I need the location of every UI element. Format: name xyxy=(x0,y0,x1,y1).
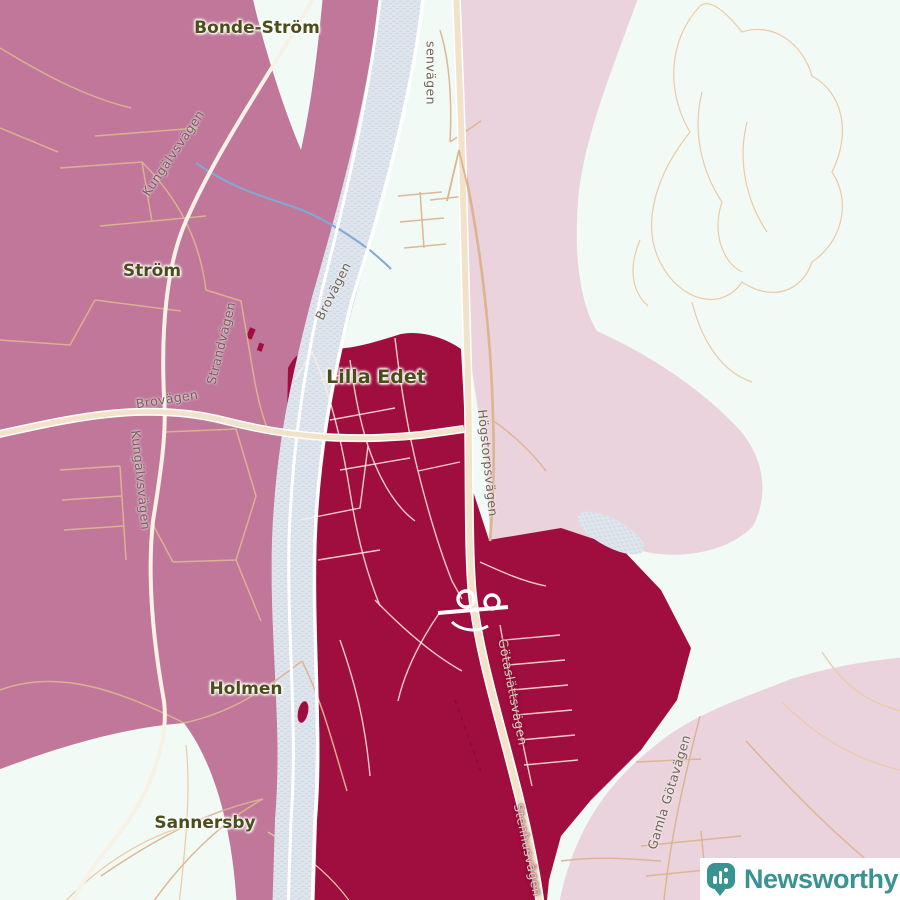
attribution-logo: Newsworthy xyxy=(700,858,900,900)
map-svg xyxy=(0,0,900,900)
map-canvas[interactable]: Bonde-Ström Ström Lilla Edet Holmen Sann… xyxy=(0,0,900,900)
brand-wordmark: Newsworthy xyxy=(744,864,898,895)
newsworthy-bar-chart-bubble-icon xyxy=(707,861,735,897)
